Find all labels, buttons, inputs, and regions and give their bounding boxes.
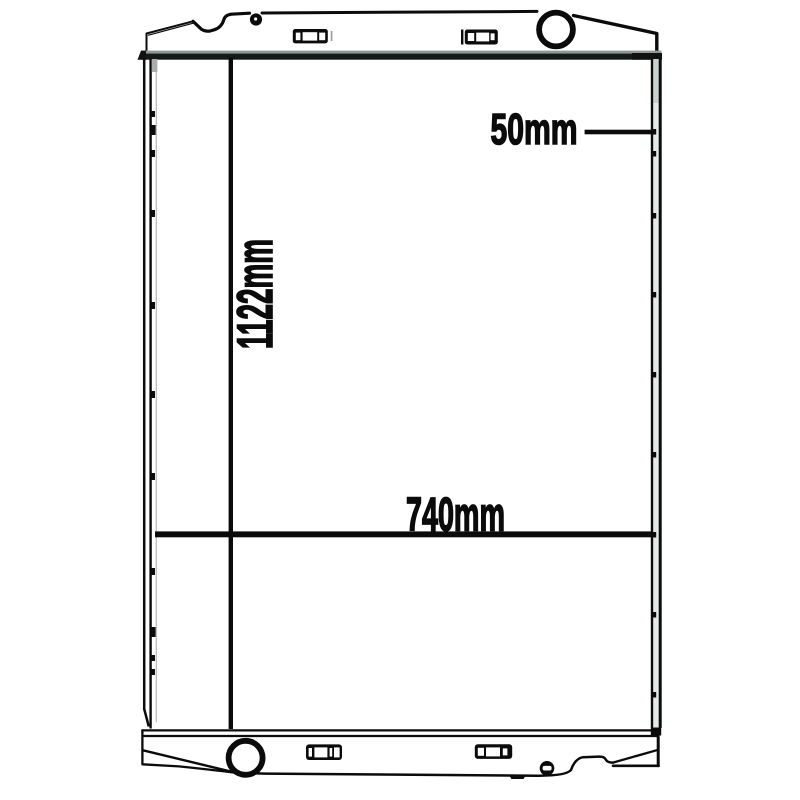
svg-text:1122mm: 1122mm: [227, 239, 283, 349]
svg-text:50mm: 50mm: [491, 105, 578, 154]
svg-text:740mm: 740mm: [406, 488, 505, 541]
